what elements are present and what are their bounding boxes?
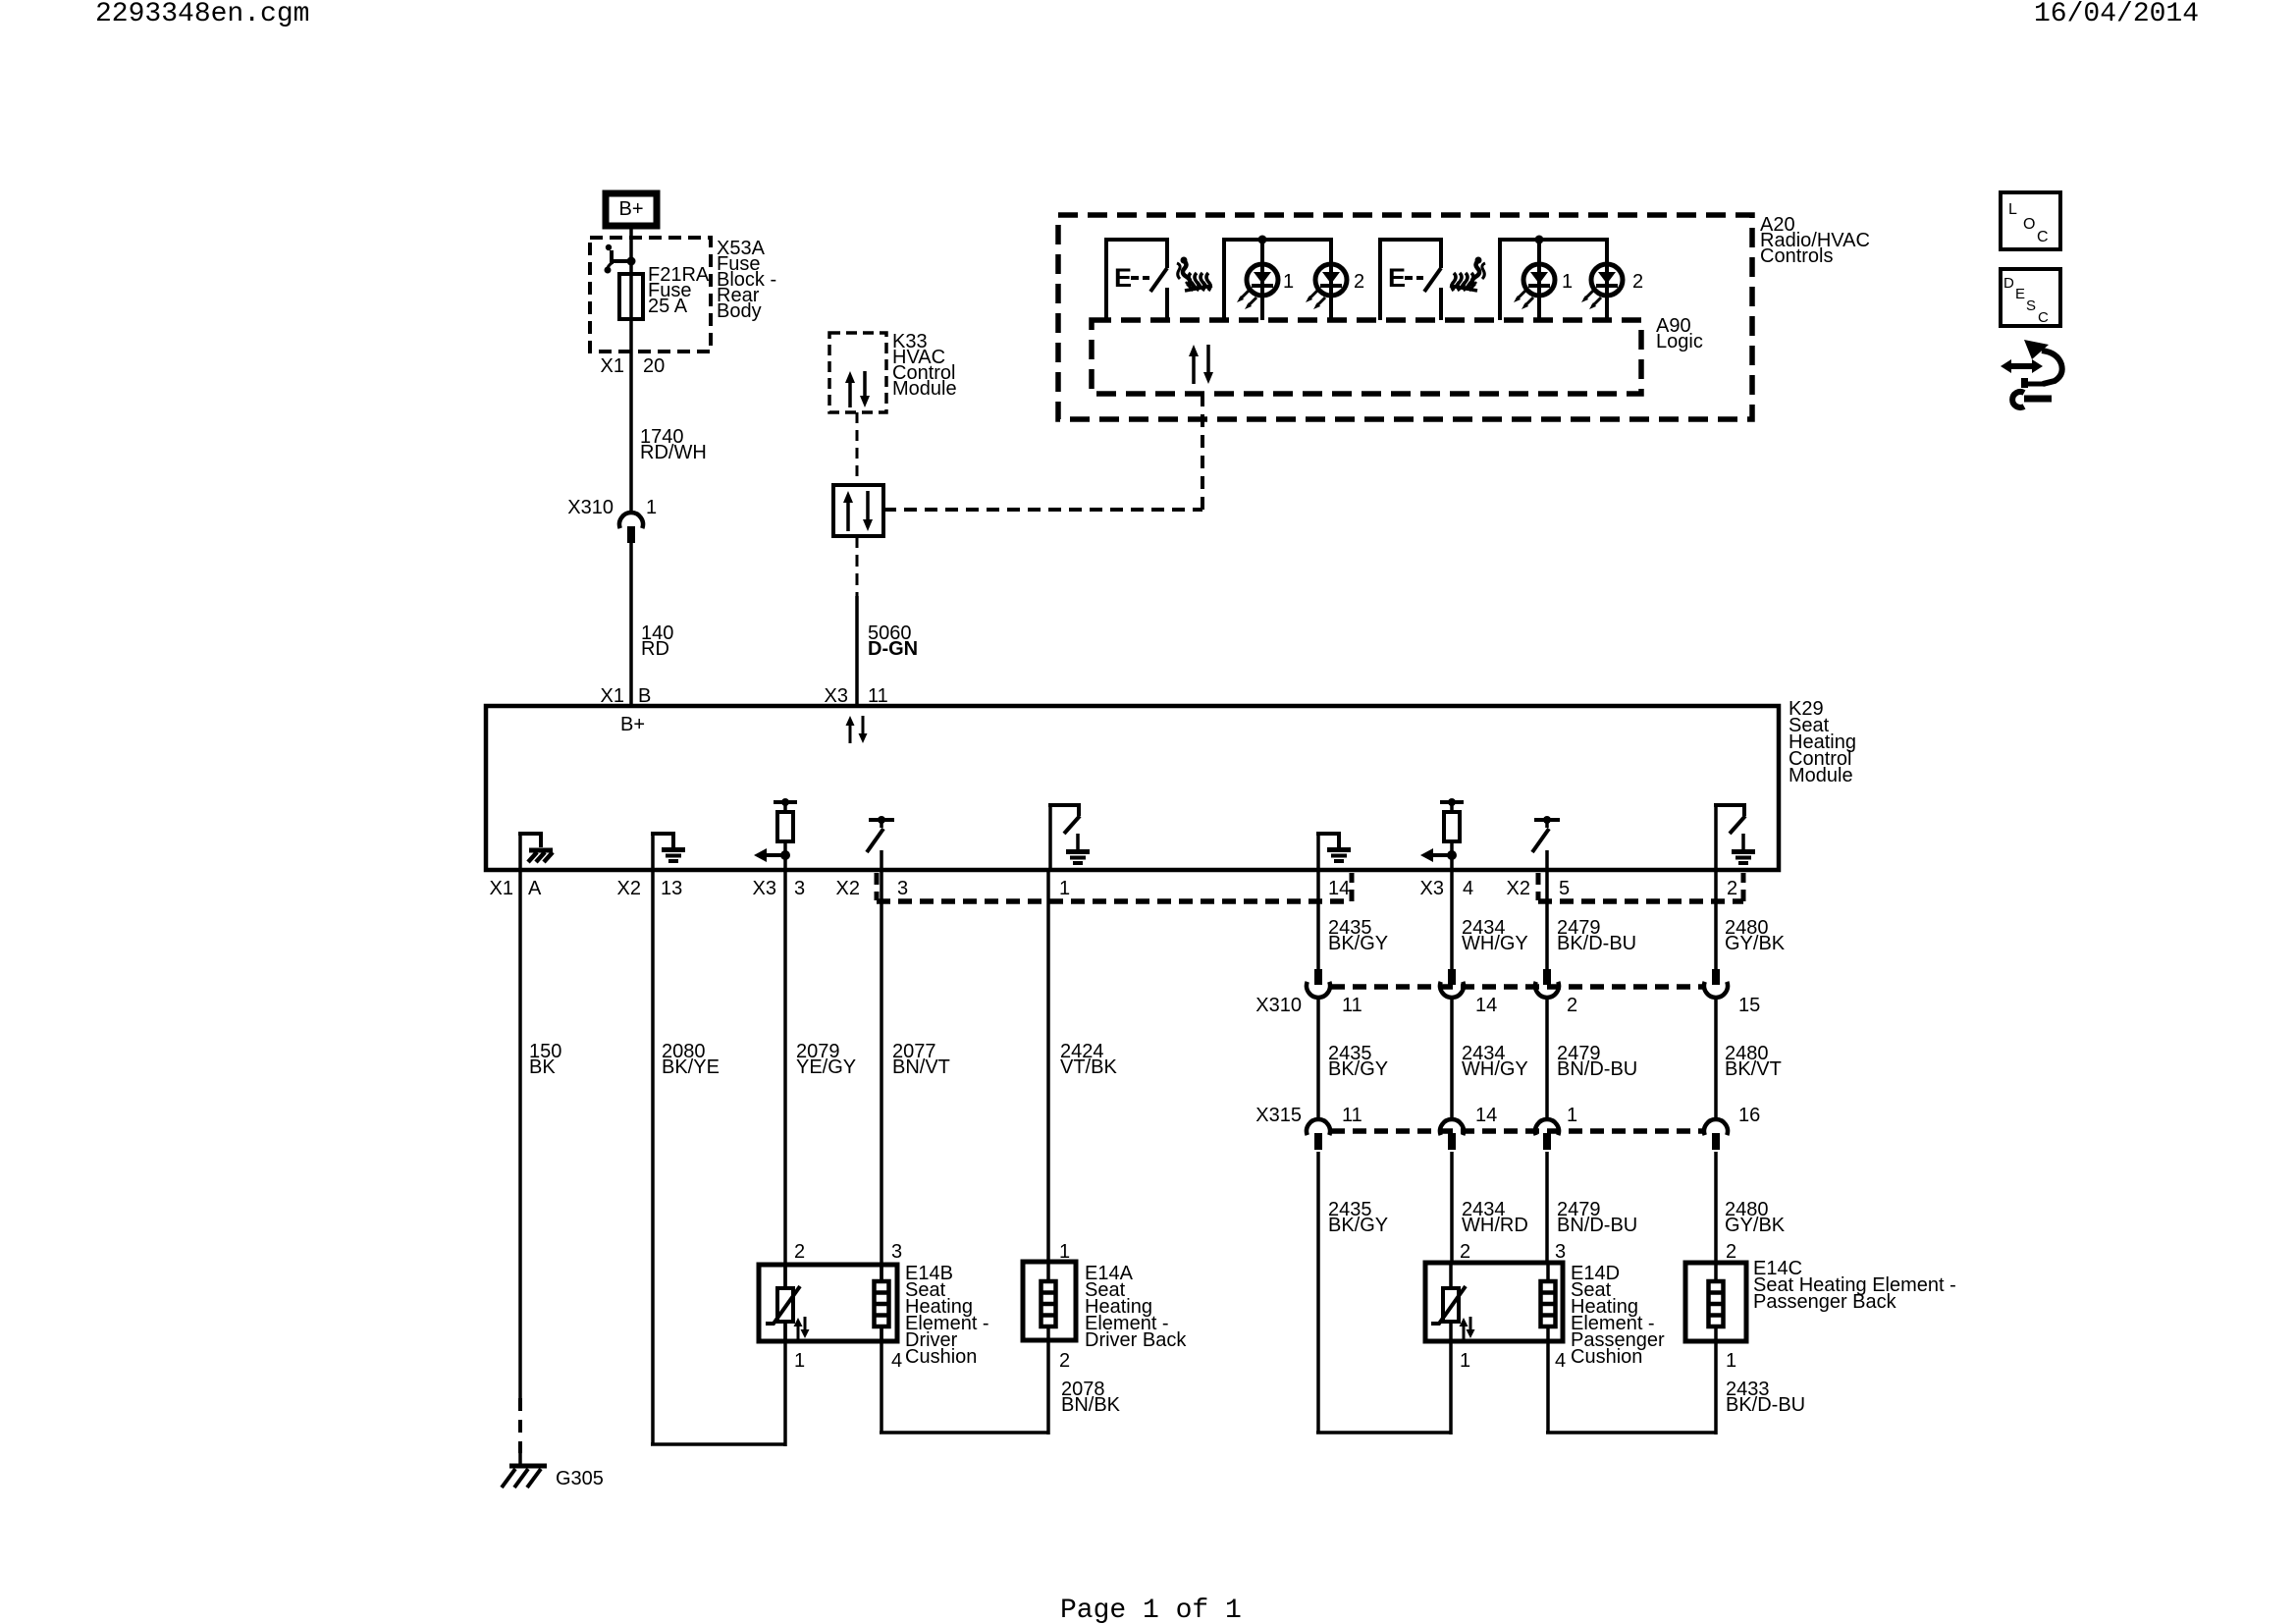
svg-text:1: 1 <box>1726 1350 1736 1372</box>
svg-text:3: 3 <box>891 1241 902 1263</box>
svg-text:BK/GY: BK/GY <box>1328 933 1388 954</box>
svg-text:1: 1 <box>794 1350 805 1372</box>
svg-text:X1: X1 <box>601 685 624 707</box>
svg-text:WH/RD: WH/RD <box>1462 1215 1528 1236</box>
svg-text:2: 2 <box>1632 271 1643 293</box>
svg-text:E: E <box>2015 286 2025 302</box>
svg-text:BK/D-BU: BK/D-BU <box>1726 1394 1805 1416</box>
svg-text:11: 11 <box>1342 995 1362 1016</box>
svg-text:4: 4 <box>1463 878 1473 899</box>
svg-text:2: 2 <box>1354 271 1364 293</box>
svg-text:3: 3 <box>794 878 805 899</box>
svg-text:14: 14 <box>1475 1105 1497 1126</box>
svg-text:13: 13 <box>661 878 682 899</box>
svg-text:X310: X310 <box>567 497 614 518</box>
svg-text:X2: X2 <box>836 878 860 899</box>
svg-text:BK: BK <box>529 1056 556 1078</box>
svg-text:2: 2 <box>1567 995 1577 1016</box>
svg-text:C: C <box>2037 229 2049 245</box>
svg-text:15: 15 <box>1738 995 1760 1016</box>
svg-text:RD/WH: RD/WH <box>640 442 707 463</box>
svg-text:X315: X315 <box>1255 1105 1302 1126</box>
svg-text:Module: Module <box>1789 765 1853 786</box>
svg-text:YE/GY: YE/GY <box>796 1056 856 1078</box>
svg-text:BK/D-BU: BK/D-BU <box>1557 933 1636 954</box>
svg-text:G305: G305 <box>556 1468 604 1489</box>
svg-text:1: 1 <box>1562 271 1573 293</box>
svg-text:1: 1 <box>1059 1241 1070 1263</box>
svg-text:Body: Body <box>717 300 762 322</box>
svg-text:BK/YE: BK/YE <box>662 1056 720 1078</box>
svg-text:BK/GY: BK/GY <box>1328 1215 1388 1236</box>
svg-text:14: 14 <box>1328 878 1350 899</box>
svg-text:B+: B+ <box>618 198 643 220</box>
svg-text:BN/BK: BN/BK <box>1061 1394 1121 1416</box>
svg-text:GY/BK: GY/BK <box>1725 1215 1786 1236</box>
svg-text:RD: RD <box>641 638 669 660</box>
svg-text:Module: Module <box>892 378 957 400</box>
svg-text:1: 1 <box>1460 1350 1470 1372</box>
svg-text:4: 4 <box>1555 1350 1566 1372</box>
svg-text:B+: B+ <box>620 714 645 735</box>
svg-text:X3: X3 <box>825 685 848 707</box>
svg-text:1: 1 <box>646 497 657 518</box>
svg-text:BN/D-BU: BN/D-BU <box>1557 1058 1637 1080</box>
svg-text:O: O <box>2023 216 2035 233</box>
svg-text:25 A: 25 A <box>648 296 688 317</box>
svg-text:11: 11 <box>1342 1105 1362 1126</box>
svg-text:D: D <box>2003 275 2014 292</box>
svg-text:BN/D-BU: BN/D-BU <box>1557 1215 1637 1236</box>
svg-text:B: B <box>638 685 651 707</box>
svg-text:11: 11 <box>868 685 888 707</box>
svg-text:Driver Back: Driver Back <box>1085 1329 1187 1351</box>
svg-text:C: C <box>2038 309 2049 326</box>
svg-text:1: 1 <box>1567 1105 1577 1126</box>
svg-text:X3: X3 <box>1420 878 1444 899</box>
svg-text:16: 16 <box>1738 1105 1760 1126</box>
svg-text:14: 14 <box>1475 995 1497 1016</box>
svg-text:3: 3 <box>897 878 908 899</box>
svg-text:2: 2 <box>1727 878 1737 899</box>
svg-text:VT/BK: VT/BK <box>1060 1056 1117 1078</box>
svg-text:WH/GY: WH/GY <box>1462 1058 1528 1080</box>
svg-text:Controls: Controls <box>1760 245 1833 267</box>
svg-text:BK/VT: BK/VT <box>1725 1058 1782 1080</box>
svg-text:BN/VT: BN/VT <box>892 1056 950 1078</box>
svg-text:X1: X1 <box>601 355 624 377</box>
svg-text:Logic: Logic <box>1656 331 1703 352</box>
svg-text:X2: X2 <box>617 878 641 899</box>
svg-text:Cushion: Cushion <box>905 1346 977 1368</box>
svg-text:E: E <box>1388 263 1406 293</box>
svg-text:X2: X2 <box>1507 878 1530 899</box>
svg-text:3: 3 <box>1555 1241 1566 1263</box>
svg-text:X1: X1 <box>490 878 513 899</box>
svg-text:E: E <box>1114 263 1132 293</box>
svg-text:1: 1 <box>1059 878 1070 899</box>
svg-text:GY/BK: GY/BK <box>1725 933 1786 954</box>
svg-text:Page 1 of 1: Page 1 of 1 <box>1060 1596 1242 1624</box>
svg-text:2: 2 <box>1059 1350 1070 1372</box>
svg-text:Passenger Back: Passenger Back <box>1753 1291 1897 1313</box>
svg-text:2293348en.cgm: 2293348en.cgm <box>95 0 309 29</box>
svg-text:2: 2 <box>1726 1241 1736 1263</box>
svg-text:4: 4 <box>891 1350 902 1372</box>
svg-text:BK/GY: BK/GY <box>1328 1058 1388 1080</box>
svg-text:L: L <box>2008 201 2017 218</box>
svg-text:Cushion: Cushion <box>1571 1346 1642 1368</box>
svg-text:X310: X310 <box>1255 995 1302 1016</box>
svg-text:A: A <box>528 878 542 899</box>
svg-text:S: S <box>2026 298 2036 314</box>
svg-text:1: 1 <box>1283 271 1294 293</box>
svg-text:2: 2 <box>794 1241 805 1263</box>
svg-text:20: 20 <box>643 355 665 377</box>
svg-text:16/04/2014: 16/04/2014 <box>2034 0 2199 29</box>
svg-text:5: 5 <box>1559 878 1570 899</box>
svg-text:X3: X3 <box>753 878 776 899</box>
svg-text:2: 2 <box>1460 1241 1470 1263</box>
svg-text:D-GN: D-GN <box>868 638 918 660</box>
svg-text:WH/GY: WH/GY <box>1462 933 1528 954</box>
